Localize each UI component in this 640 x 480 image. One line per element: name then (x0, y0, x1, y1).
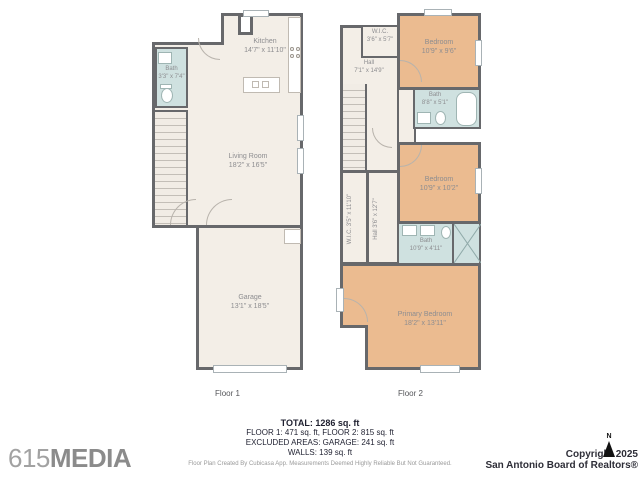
wall-segment (343, 170, 400, 173)
room-label-wic-top: W.I.C. 3'6" x 5'7" (359, 29, 401, 44)
sink-icon (420, 225, 435, 236)
room-label-wic-vertical: W.I.C. 3'5" x 11'10" (347, 179, 365, 259)
room-label-living-room: Living Room 18'2" x 16'5" (203, 152, 293, 170)
room-label-bedroom-top: Bedroom 10'9" x 9'6" (400, 38, 478, 56)
logo-word: MEDIA (50, 443, 131, 473)
room-label-hall-vertical: Hall 3'6" x 12'7" (373, 179, 391, 259)
compass-icon: N (600, 433, 618, 457)
wall-segment (366, 173, 369, 262)
staircase-floor2 (343, 84, 367, 170)
room-label-bedroom-mid: Bedroom 10'9" x 10'2" (400, 175, 478, 193)
window-icon (475, 168, 482, 194)
bathtub-icon (456, 92, 477, 126)
copyright-org-text: San Antonio Board of Realtors® (378, 460, 638, 471)
island-sink-icon (252, 81, 259, 88)
sink-icon (158, 52, 172, 64)
toilet-icon (161, 88, 173, 103)
garage-door-icon (213, 365, 287, 373)
window-icon (475, 40, 482, 66)
floor-plan-canvas: Bath 3'3" x 7'4" Kitchen 14'7" x 11'10" … (0, 0, 640, 480)
615media-logo: 615MEDIA (8, 443, 131, 474)
primary-bedroom-notch (340, 325, 368, 370)
window-icon (297, 148, 304, 174)
total-area-text: TOTAL: 1286 sq. ft (0, 418, 640, 428)
window-icon (424, 9, 452, 16)
floor2-caption: Floor 2 (340, 389, 481, 398)
sink-icon (402, 225, 417, 236)
room-label-kitchen: Kitchen 14'7" x 11'10" (230, 37, 300, 55)
window-icon (336, 288, 344, 312)
copyright-notice: Copyright 2025 San Antonio Board of Real… (378, 449, 638, 471)
logo-number: 615 (8, 443, 50, 473)
chimney-block (238, 14, 253, 35)
room-label-bath-top: Bath 8'8" x 5'1" (412, 92, 458, 107)
room-label-primary-bedroom: Primary Bedroom 18'2" x 13'11" (365, 310, 485, 328)
shower-icon (452, 224, 479, 263)
window-icon (297, 115, 304, 141)
room-label-garage: Garage 13'1" x 18'5" (208, 293, 292, 311)
window-icon (420, 365, 460, 373)
room-label-bath-mid: Bath 10'9" x 4'11" (398, 238, 454, 253)
window-icon (243, 10, 269, 17)
compass-needle-icon (603, 441, 615, 457)
water-heater-icon (284, 229, 301, 244)
room-label-bath-floor1: Bath 3'3" x 7'4" (153, 66, 190, 81)
floor1-caption: Floor 1 (152, 389, 303, 398)
compass-north-label: N (600, 433, 618, 441)
floor-areas-text: FLOOR 1: 471 sq. ft, FLOOR 2: 815 sq. ft (0, 428, 640, 438)
island-sink-icon (262, 81, 269, 88)
copyright-year-text: Copyright 2025 (378, 449, 638, 460)
room-label-hall: Hall 7'1" x 14'9" (341, 60, 397, 75)
toilet-icon (435, 111, 446, 125)
sink-icon (417, 112, 431, 124)
